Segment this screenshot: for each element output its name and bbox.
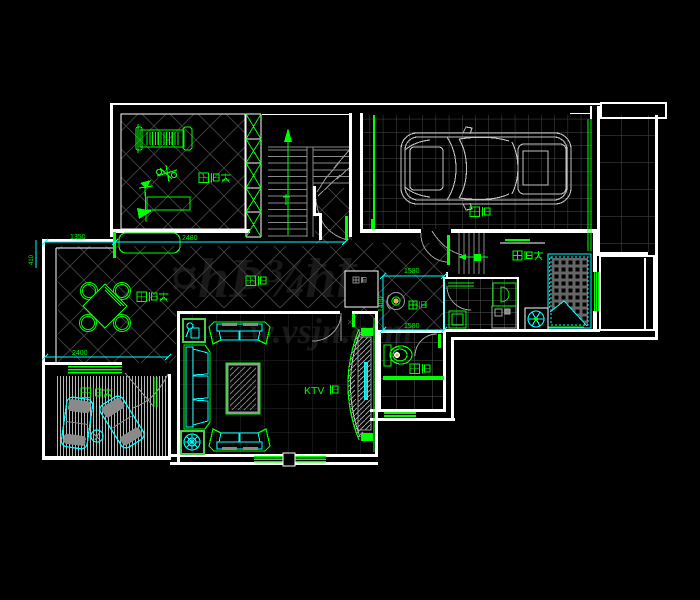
svg-text:1400: 1400: [378, 296, 385, 312]
svg-text:KTV: KTV: [304, 385, 324, 397]
svg-text:1580: 1580: [404, 323, 420, 330]
svg-text:2400: 2400: [72, 350, 88, 357]
svg-text:1580: 1580: [404, 268, 420, 275]
svg-text:1350: 1350: [70, 234, 86, 241]
svg-text:410: 410: [29, 254, 35, 265]
svg-text:2480: 2480: [182, 235, 198, 242]
